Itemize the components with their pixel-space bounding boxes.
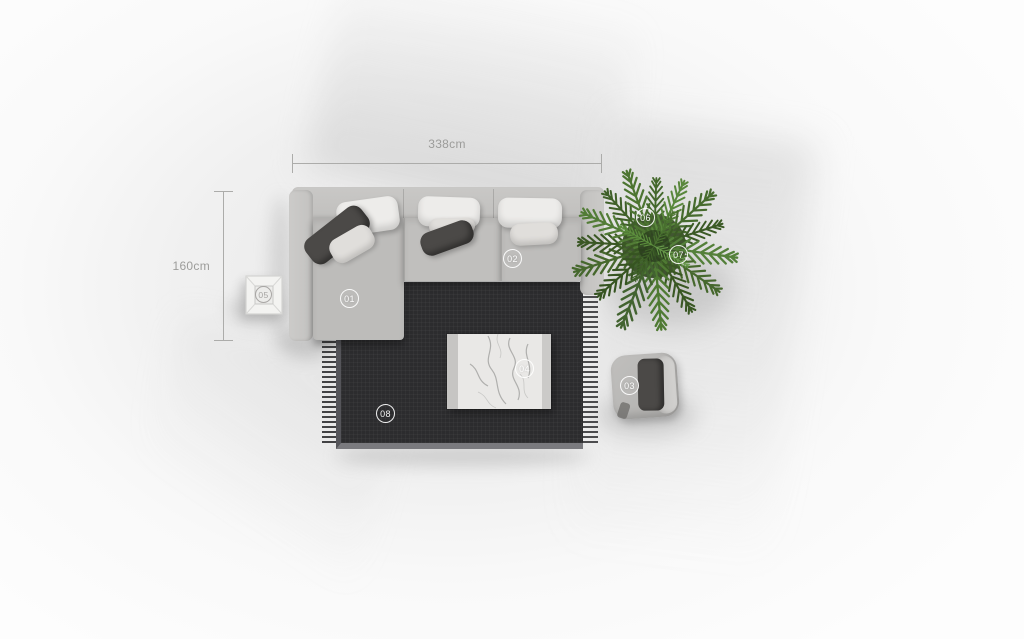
marker-side-table[interactable]: 05 <box>255 286 272 303</box>
dimension-tick <box>601 154 602 173</box>
room-top-view: 338cm 160cm 01 02 03 04 05 06 07 08 <box>0 0 1024 639</box>
width-dimension-label: 338cm <box>292 137 602 151</box>
dimension-tick <box>292 154 293 173</box>
marker-sofa-chaise[interactable]: 01 <box>340 289 359 308</box>
coffee-table <box>447 334 551 409</box>
dimension-tick <box>214 340 233 341</box>
marker-plant-1[interactable]: 06 <box>636 208 655 227</box>
dimension-line <box>292 163 602 164</box>
dimension-tick <box>214 191 233 192</box>
pouf-blanket <box>637 358 664 410</box>
depth-dimension-line <box>214 191 233 341</box>
coffee-table-edge <box>447 334 458 409</box>
sofa-seam <box>403 189 404 218</box>
white-pillow <box>509 222 558 246</box>
dimension-line <box>223 191 224 341</box>
palm-plant <box>558 152 754 338</box>
marker-sofa-seat[interactable]: 02 <box>503 249 522 268</box>
width-dimension-line <box>292 154 602 173</box>
sofa-seam <box>493 189 494 218</box>
depth-dimension-label: 160cm <box>156 259 210 273</box>
marker-plant-2[interactable]: 07 <box>669 245 688 264</box>
pouf-fold-shadow <box>616 401 630 419</box>
marker-pouf[interactable]: 03 <box>620 376 639 395</box>
sofa-arm-left <box>289 190 313 341</box>
marker-coffee-table[interactable]: 04 <box>515 359 534 378</box>
coffee-table-edge <box>542 334 551 409</box>
marker-rug[interactable]: 08 <box>376 404 395 423</box>
